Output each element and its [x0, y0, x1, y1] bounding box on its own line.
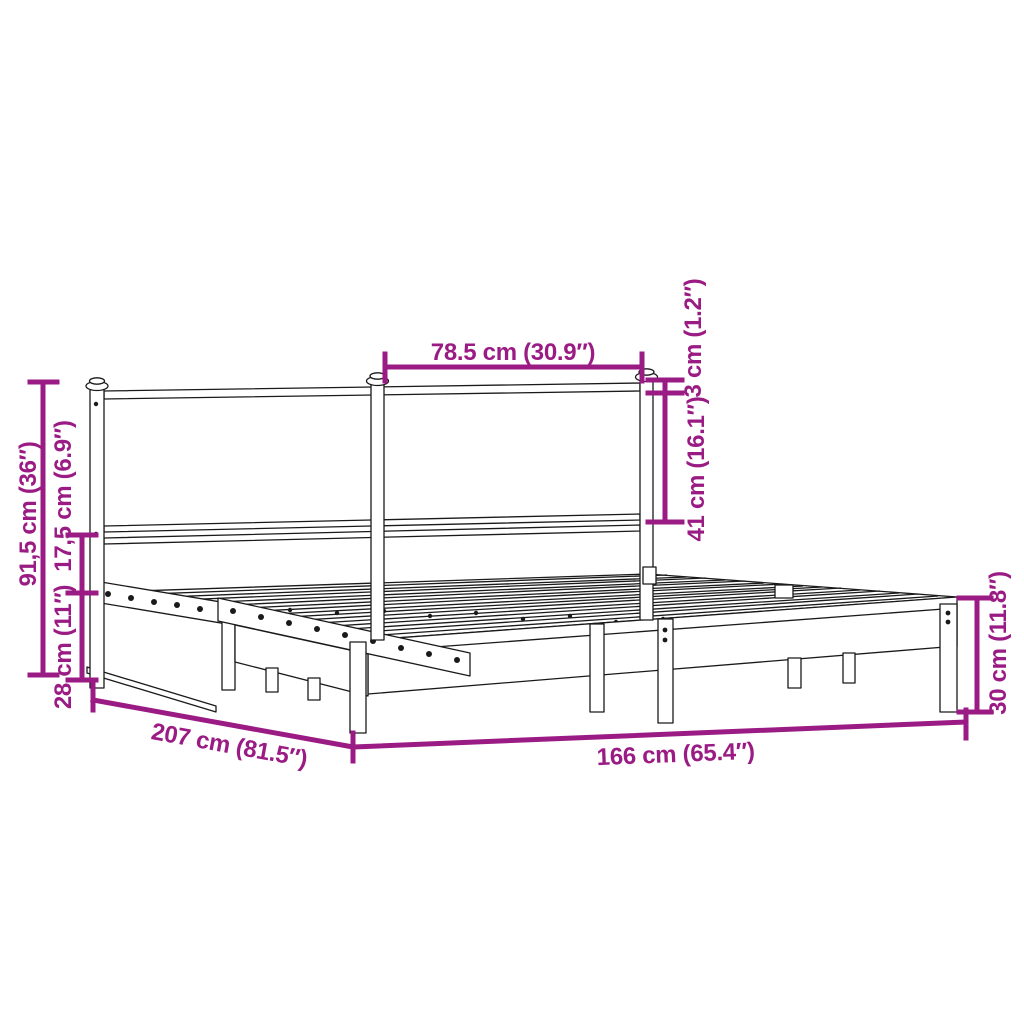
foot-mid-leg	[658, 619, 673, 723]
dimension-label-headboard-total-height: 91,5 cm (36″)	[15, 441, 42, 586]
right-post-bracket	[643, 567, 656, 584]
dimension-label-headboard-panel-height: 41 cm (16.1″)	[683, 396, 710, 541]
slat-clip-bracket	[775, 585, 793, 598]
dimension-label-frame-width: 166 cm (65.4″)	[596, 738, 755, 771]
dimension-label-head-base-height: 28 cm (11″)	[50, 585, 77, 709]
foot-stub-leg	[843, 653, 855, 683]
bed-frame-diagram-canvas: 78.5 cm (30.9″) 3 cm (1.2″) 41 cm (16.1″…	[0, 0, 1024, 1024]
dim-foot-base-height: 30 cm (11.8″)	[959, 571, 1012, 715]
dimension-label-headboard-section-width: 78.5 cm (30.9″)	[431, 339, 595, 366]
dimension-label-rail-gap-height: 17,5 cm (6.9″)	[50, 420, 77, 571]
headboard-center-post	[371, 384, 384, 640]
bed-frame-drawing	[86, 369, 957, 733]
foot-mid-leg	[590, 624, 604, 712]
near-stub-leg	[266, 668, 278, 692]
dim-headboard-section-width: 78.5 cm (30.9″)	[385, 339, 642, 381]
dimension-label-foot-base-height: 30 cm (11.8″)	[985, 571, 1012, 715]
head-lower-brace	[87, 667, 216, 712]
foot-stub-leg	[788, 658, 801, 688]
dim-finial-and-panel-height: 3 cm (1.2″) 41 cm (16.1″)	[648, 279, 710, 542]
product-dimension-diagram: 78.5 cm (30.9″) 3 cm (1.2″) 41 cm (16.1″…	[0, 0, 1024, 1024]
dim-head-side-heights: 17,5 cm (6.9″) 28 cm (11″)	[50, 420, 96, 709]
foot-near-leg	[350, 642, 366, 733]
left-post-finial-top	[90, 378, 105, 384]
dimension-label-finial-height: 3 cm (1.2″)	[680, 279, 707, 398]
near-stub-leg	[308, 678, 320, 700]
headboard-left-post	[90, 389, 104, 688]
